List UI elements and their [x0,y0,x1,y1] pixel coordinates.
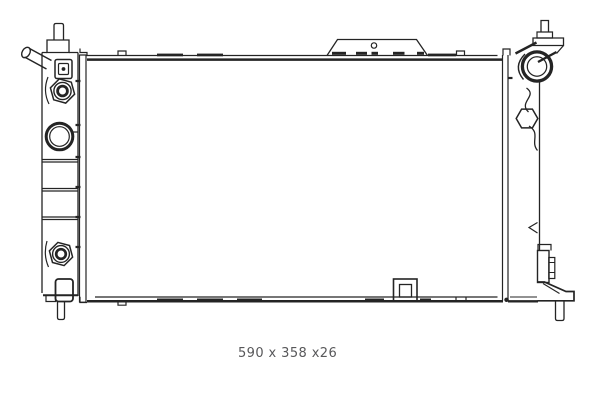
cap-stem [541,21,549,33]
stem-flange [537,32,553,38]
left-tank [20,24,78,320]
filler-neck-opening [518,52,551,81]
dimensions-caption: 590 x 358 x26 [238,346,337,361]
outlet-fitting [538,245,555,283]
filler-stem [54,24,64,41]
radiator-line-drawing [0,0,600,400]
clip-notch [529,223,538,234]
left-side-plate [76,55,87,303]
right-tank [508,21,574,321]
drain-hex-fitting [45,241,72,267]
mounting-pin-left [58,302,65,320]
bottom-mounting-bracket [394,279,418,301]
mounting-foot-left [46,279,73,320]
top-mounting-bracket [327,40,428,56]
inlet-hex-fitting [45,77,74,104]
core [80,49,503,306]
right-side-plate [503,49,513,302]
hose-wave-lower [529,126,538,151]
mounting-foot-right [538,282,575,321]
sensor-port [55,60,72,79]
pipe-end [20,46,32,59]
tank-seams [42,160,78,220]
drain-plug-hex [516,109,538,128]
product-image: 590 x 358 x26 [0,0,600,400]
port-dot [62,67,66,71]
bracket-slot [400,285,412,298]
cap-block [533,38,564,46]
bracket-hole [371,43,376,48]
mounting-pin-right [556,301,565,321]
lower-port-circle [46,123,78,150]
stem-block [47,40,69,53]
